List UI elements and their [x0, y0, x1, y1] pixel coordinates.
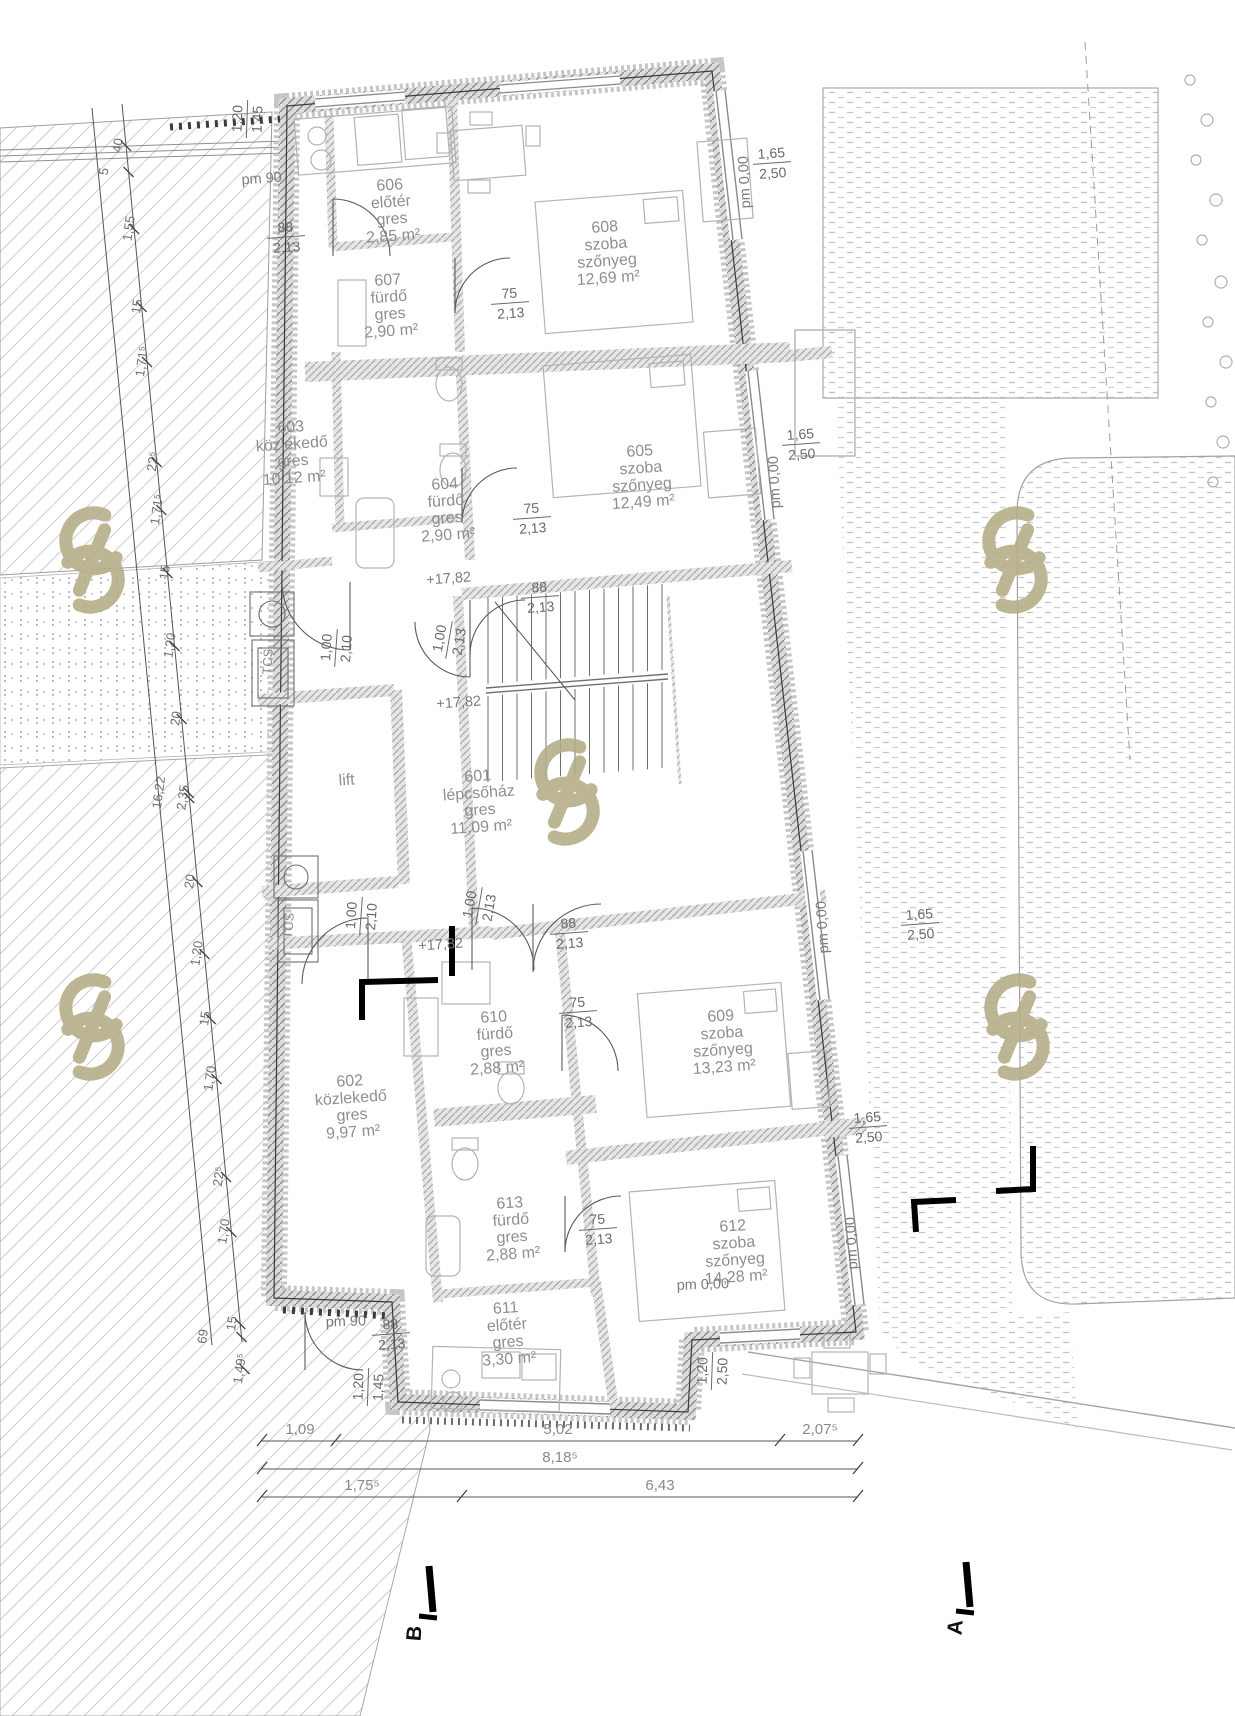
- room-label-line: gres: [496, 1228, 528, 1247]
- section-flag: [966, 1562, 970, 1607]
- dim-denominator: 2,13: [527, 598, 556, 616]
- room-label-line: 602: [336, 1072, 364, 1091]
- dim-numerator: 1,00: [342, 901, 360, 930]
- floor-plan-canvas: 606előtérgres2,85 m²607fürdőgres2,90 m²6…: [0, 0, 1235, 1716]
- chain-dim: 69: [194, 1328, 211, 1344]
- room-label-line: 604: [431, 475, 459, 494]
- dim-tick: [853, 1490, 863, 1502]
- bottom-dim: 1,09: [285, 1421, 314, 1438]
- room-label-line: 605: [626, 442, 654, 461]
- room-label-line: gres: [277, 452, 309, 471]
- bottom-dim: 1,75⁵: [344, 1477, 379, 1494]
- chain-dim: 15: [156, 564, 173, 580]
- dim-denominator: 2,13: [585, 1230, 614, 1248]
- window: [720, 1329, 800, 1343]
- room-label-line: 603: [277, 418, 305, 437]
- section-flag: [429, 1566, 433, 1612]
- dim-numerator: 88: [277, 218, 294, 235]
- dim-numerator: 1,20: [229, 105, 246, 133]
- courtyard-rounded-area: [1017, 456, 1235, 1304]
- room-label-line: gres: [480, 1042, 512, 1061]
- dim-numerator: 1,65: [757, 144, 786, 162]
- level-mark: +17,82: [426, 569, 472, 588]
- dim-fraction: 1,202,50: [693, 1351, 730, 1390]
- room-label-line: gres: [464, 801, 496, 820]
- room-label-line: 611: [492, 1299, 519, 1318]
- dim-numerator: 75: [589, 1210, 606, 1227]
- dim-denominator: 2,50: [855, 1128, 884, 1146]
- room-label-line: 613: [496, 1194, 524, 1213]
- section-flag-foot: [419, 1616, 437, 1618]
- dim-numerator: 1,65: [853, 1108, 882, 1126]
- room-label-line: 612: [719, 1217, 747, 1236]
- dim-numerator: 75: [569, 993, 586, 1010]
- bottom-dim: 2,07⁵: [802, 1421, 837, 1438]
- level-mark: pm 90: [325, 1313, 366, 1330]
- room-label-line: lift: [338, 771, 356, 789]
- section-letter: A: [943, 1619, 967, 1636]
- room-label-line: gres: [492, 1333, 524, 1352]
- dim-numerator: 1,65: [905, 905, 934, 923]
- roof-terrace-block: [823, 88, 1158, 398]
- floor-plan-page: 606előtérgres2,85 m²607fürdőgres2,90 m²6…: [0, 0, 1235, 1716]
- level-mark: pm 0,00: [814, 901, 833, 954]
- dim-denominator: 2,50: [714, 1357, 731, 1385]
- dim-tick: [457, 1490, 467, 1502]
- dim-numerator: 1,20: [694, 1357, 711, 1385]
- room-label-line: gres: [336, 1106, 368, 1125]
- dim-tick: [853, 1434, 863, 1446]
- shaft-label: TCS: [280, 912, 297, 939]
- level-mark: pm 0,00: [843, 1217, 862, 1270]
- level-mark: pm 0,00: [736, 156, 755, 209]
- chain-dim: 40: [109, 137, 126, 153]
- shaft-label: TCS: [259, 648, 276, 675]
- bottom-dim: 5,02: [543, 1421, 572, 1438]
- room-label-line: 610: [480, 1008, 508, 1027]
- dim-denominator: 2,13: [519, 519, 548, 537]
- neighbor-building-hatch: [0, 112, 272, 575]
- dim-fraction: 1,201,45: [228, 99, 265, 138]
- dim-denominator: 2,50: [907, 925, 936, 943]
- dim-denominator: 2,13: [565, 1013, 594, 1031]
- dim-fraction: 1,652,50: [781, 425, 821, 464]
- dim-numerator: 1,00: [317, 633, 335, 662]
- dim-denominator: 2,13: [273, 238, 302, 256]
- room-label-line: 608: [591, 218, 619, 237]
- section-markers-layer: BA: [402, 1562, 974, 1642]
- level-mark: pm 0,00: [766, 456, 785, 509]
- dim-denominator: 2,50: [759, 164, 788, 182]
- dim-tick: [853, 1462, 863, 1474]
- room-label-line: 606: [376, 176, 404, 195]
- level-mark: +17,82: [418, 935, 464, 954]
- dim-numerator: 88: [382, 1315, 399, 1332]
- dim-numerator: 88: [531, 578, 548, 595]
- room-label: lift: [338, 771, 356, 789]
- level-mark: +17,82: [436, 693, 482, 712]
- dim-tick: [775, 1434, 785, 1446]
- dim-denominator: 2,13: [497, 304, 526, 322]
- room-label-line: gres: [376, 210, 408, 229]
- bottom-dim: 8,18⁵: [542, 1449, 577, 1466]
- dim-denominator: 1,45: [249, 105, 266, 133]
- dim-denominator: 1,45: [370, 1373, 387, 1401]
- dim-fraction: 1,652,50: [752, 144, 792, 183]
- dim-denominator: 2,10: [337, 634, 355, 663]
- room-label-line: gres: [431, 509, 463, 528]
- room-label-line: 607: [374, 271, 402, 290]
- dim-denominator: 2,13: [556, 934, 585, 952]
- dim-denominator: 2,50: [788, 445, 817, 463]
- window: [480, 1400, 610, 1414]
- chain-dim: 15: [223, 1315, 240, 1331]
- chain-dim: 22⁵: [144, 450, 162, 472]
- dim-numerator: 1,20: [350, 1373, 367, 1401]
- level-mark: pm 90: [241, 170, 282, 189]
- chain-dim: 15: [128, 298, 145, 314]
- dim-numerator: 1,65: [786, 425, 815, 443]
- section-flag-foot: [956, 1611, 974, 1613]
- dim-denominator: 2,10: [362, 902, 380, 931]
- dim-numerator: 75: [501, 284, 518, 301]
- dim-numerator: 88: [560, 914, 577, 931]
- level-mark: pm 0,00: [676, 1276, 729, 1294]
- room-label-line: gres: [374, 305, 406, 324]
- section-letter: B: [402, 1625, 426, 1642]
- room-label-line: 601: [464, 767, 492, 786]
- vegetation-circles: [1185, 75, 1232, 487]
- dim-denominator: 2,13: [378, 1335, 407, 1353]
- chain-dim: 20: [181, 873, 198, 889]
- room-label-line: 609: [707, 1007, 735, 1026]
- dim-numerator: 75: [523, 499, 540, 516]
- bottom-dim: 6,43: [645, 1477, 674, 1494]
